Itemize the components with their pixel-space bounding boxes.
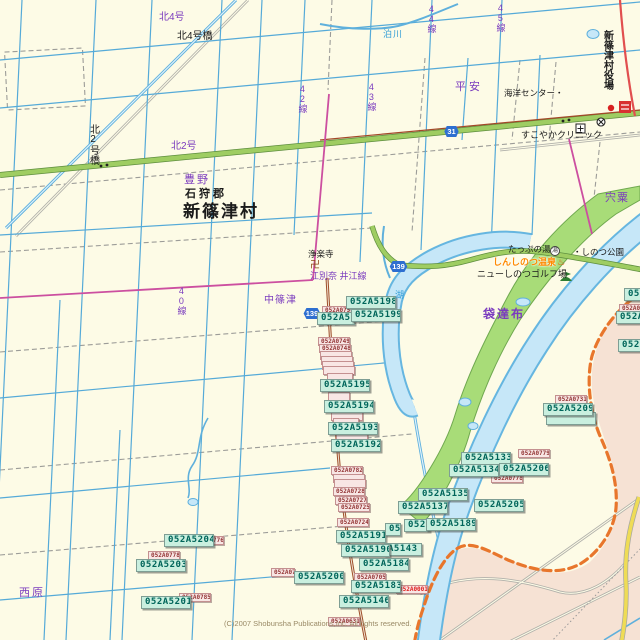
map-code-label-pink[interactable]: 052A07 [271,568,295,577]
place-label: ニューしのつゴルフ場 [477,270,567,279]
map-viewport: 13931139052A0751052A0749052A0748052A0782… [0,0,640,640]
place-label: たっぷの湯 [508,245,551,254]
place-label: 西原 [19,588,45,600]
place-label: 袋達布 [483,308,525,321]
place-label: 新篠津村役場 [601,30,612,90]
map-code-label-teal[interactable]: 052A5199 [351,309,401,322]
temple-manji-icon: 卍 [310,261,320,271]
place-label: 北4号橋 [177,32,213,43]
map-code-label-pink[interactable]: 052A0779 [518,449,550,458]
map-code-label-teal[interactable]: 052A5205 [474,499,524,512]
place-label: 40線 [176,286,185,315]
map-code-label-teal[interactable]: 052A5189 [426,518,476,531]
map-code-label-teal[interactable]: 05 [385,523,401,536]
place-label: 海洋センター・ [504,89,564,98]
place-label: 江別奈 井江線 [310,272,367,281]
place-label: 北2号橋 [87,124,98,165]
route-shield-139: 139 [388,261,409,272]
map-code-label-pink[interactable]: 052A0728 [333,487,365,496]
day-spa-icon: 湯 [550,246,560,256]
place-label: 44線 [426,4,435,33]
map-code-label-teal[interactable]: 05 [624,288,640,301]
place-label: 宍粟 [605,193,629,205]
map-code-label-teal[interactable]: 052 [618,339,640,352]
place-label: しんしのつ温泉 [493,258,556,267]
place-label: 豊野 [184,175,210,187]
place-label: 北4号 [159,13,185,24]
map-code-label-teal[interactable]: 052A5200 [294,571,344,584]
map-code-label-teal[interactable]: 052A5146 [339,595,389,608]
place-label: 北2号 [171,142,197,153]
place-label: ・しのつ公園 [573,248,624,257]
place-label: 中篠津 [264,296,297,307]
map-code-label-teal[interactable]: 052A5137 [398,501,448,514]
place-label: 石狩郡 [185,189,227,201]
map-code-label-teal[interactable]: 052A5192 [331,439,381,452]
place-label: 湖 [395,291,404,300]
map-code-label-teal[interactable]: 052A5184 [359,558,409,571]
map-code-label-teal[interactable]: 052A5 [616,311,640,324]
place-label: 浄楽寺 [308,250,334,259]
map-code-label-teal[interactable]: 052A5191 [336,530,386,543]
place-label: 42線 [297,84,306,113]
map-code-label-teal[interactable]: 052A5195 [320,379,370,392]
place-label: 泊川 [383,30,403,39]
map-code-label-teal[interactable]: 052A51 [317,312,355,325]
map-code-label-teal[interactable]: 052A5194 [324,400,374,413]
map-code-label-teal[interactable]: 052A5204 [164,534,214,547]
map-code-label-teal[interactable]: 052A5183 [351,580,401,593]
copyright-notice: (C)2007 Shobunsha Publications,Inc. All … [224,620,412,628]
hot-spring-icon: ♨ [557,258,565,267]
map-code-label-pink[interactable]: 052A0725 [338,503,370,512]
place-label: すこやかクリニック [521,131,602,140]
map-code-label-teal[interactable]: 052A5201 [141,596,191,609]
place-label: 平安 [455,82,483,94]
place-label: 45線 [495,3,504,32]
route-shield-31: 31 [443,126,460,137]
map-code-label-teal[interactable]: 052A5193 [328,422,378,435]
map-code-label-teal[interactable]: 052A5209 [543,403,593,416]
place-label: 43線 [366,82,375,111]
map-code-label-teal[interactable]: 052A5190 [341,544,390,557]
map-code-label-teal[interactable]: 052A5135 [418,488,468,501]
map-code-label-teal[interactable]: 052A5134 [449,464,499,477]
map-code-label-teal[interactable]: 052A5198 [346,296,396,309]
map-code-label-pink[interactable]: 052A0724 [337,518,369,527]
place-label: 新篠津村 [183,203,259,221]
map-code-label-teal[interactable]: 052A5206 [499,463,549,476]
map-code-label-teal[interactable]: 052A5203 [136,559,186,572]
map-labels-layer: 13931139052A0751052A0749052A0748052A0782… [0,0,640,640]
